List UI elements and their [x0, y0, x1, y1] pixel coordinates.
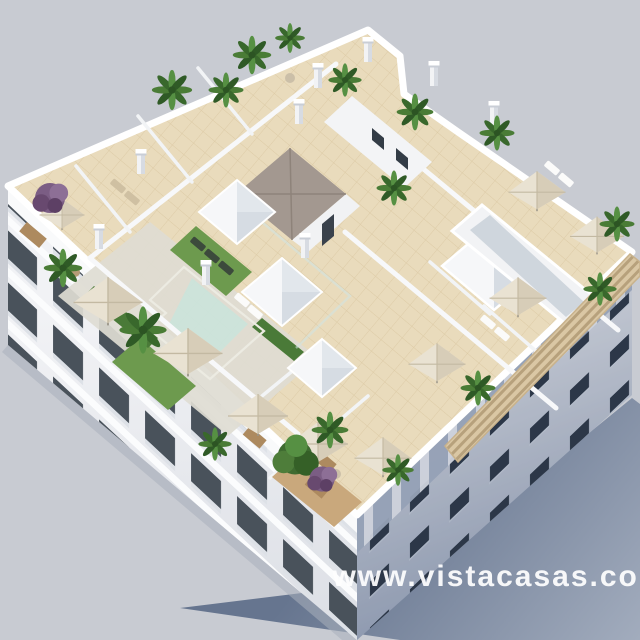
chimney	[429, 61, 440, 86]
round-table	[285, 73, 295, 83]
chimney	[363, 37, 374, 62]
palm-plant	[600, 207, 635, 242]
potted-plant	[328, 63, 361, 96]
palm-plant	[275, 23, 305, 53]
palm-plant	[152, 70, 192, 110]
palm-plant	[583, 272, 616, 305]
palm-plant	[377, 171, 412, 206]
potted-plant	[480, 116, 515, 151]
chimney	[300, 233, 311, 258]
palm-plant	[209, 73, 244, 108]
watermark-text: www.vistacasas.com	[331, 560, 640, 593]
palm-tree	[44, 249, 83, 288]
render-canvas: www.vistacasas.com	[0, 0, 640, 640]
chimney	[94, 224, 105, 249]
potted-plant	[382, 454, 414, 486]
palm-tree	[119, 306, 166, 353]
potted-plant	[198, 427, 231, 460]
chimney	[313, 63, 324, 88]
rooftop-render: www.vistacasas.com	[0, 0, 640, 640]
chimney	[136, 149, 147, 174]
potted-plant	[397, 94, 434, 131]
palm-plant	[312, 412, 349, 449]
chimney	[294, 99, 305, 124]
palm-plant	[233, 36, 272, 75]
palm-plant	[461, 371, 496, 406]
chimney	[201, 260, 212, 285]
